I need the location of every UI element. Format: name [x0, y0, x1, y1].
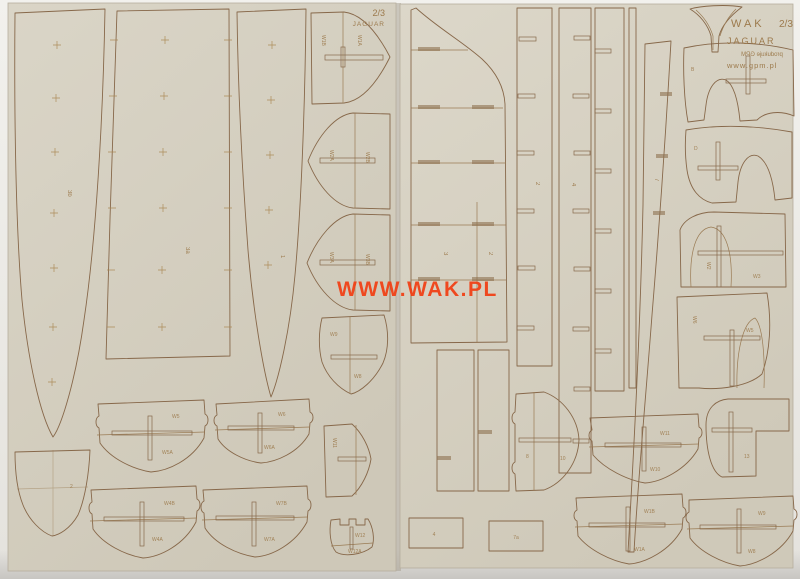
part-label: W3A [328, 252, 334, 264]
part-label: W11 [660, 431, 670, 437]
scale-text: 2/3 [779, 19, 793, 30]
part-label: 13 [744, 454, 750, 460]
part-label: W5 [172, 414, 180, 420]
part-label: W6A [264, 445, 276, 451]
part-label: W5 [746, 328, 754, 334]
part-label: W12A [348, 549, 362, 555]
sheets-canvas: 3b 3a 1 W1B W1A W2A [0, 0, 800, 579]
part-label: W2B [364, 152, 370, 164]
part-label: W7B [276, 501, 288, 507]
photo-laser-cut-model-sheets: 3b 3a 1 W1B W1A W2A [0, 0, 800, 579]
wak-watermark-text: WWW.WAK.PL [337, 278, 498, 301]
model-text: JAGUAR [727, 36, 776, 46]
part-label: 4 [433, 532, 436, 538]
part-label: 3b [66, 190, 72, 197]
part-label: W9 [758, 511, 766, 517]
part-label: W10 [650, 467, 661, 473]
part-label: 10 [560, 456, 566, 462]
left-sheet-model-text: JAGUAR [353, 21, 385, 28]
part-label: W1B [644, 509, 656, 515]
part-label: W11 [331, 438, 337, 448]
part-label: W1B [320, 35, 326, 47]
part-label: 3a [184, 247, 190, 254]
part-label: W3B [364, 254, 370, 266]
part-label: 7a [513, 535, 519, 541]
part-label: W8 [748, 549, 756, 555]
part-label: W7A [264, 537, 276, 543]
part-label: W4A [152, 537, 164, 543]
part-label: W2 [705, 262, 711, 270]
part-label: W1A [634, 547, 646, 553]
part-label: W6 [691, 316, 697, 324]
part-label: W3 [753, 274, 761, 280]
part-label: W8 [354, 374, 362, 380]
part-label: W2A [328, 150, 334, 162]
part-label: W5A [162, 450, 174, 456]
part-label: W9 [330, 332, 338, 338]
part-label: 2 [70, 484, 73, 490]
part-label: W4B [164, 501, 176, 507]
part-label: 8 [526, 454, 529, 460]
website-text: www.gpm.pl [726, 61, 777, 70]
brand-text: WAK [731, 18, 765, 30]
part-label: W6 [278, 412, 286, 418]
producer-mirrored-text: produkuje GPM [741, 52, 783, 58]
left-sheet-scale-text: 2/3 [372, 8, 385, 18]
part-label: W1A [356, 35, 362, 47]
part-label: D [694, 146, 698, 152]
part-label: W12 [355, 533, 366, 539]
